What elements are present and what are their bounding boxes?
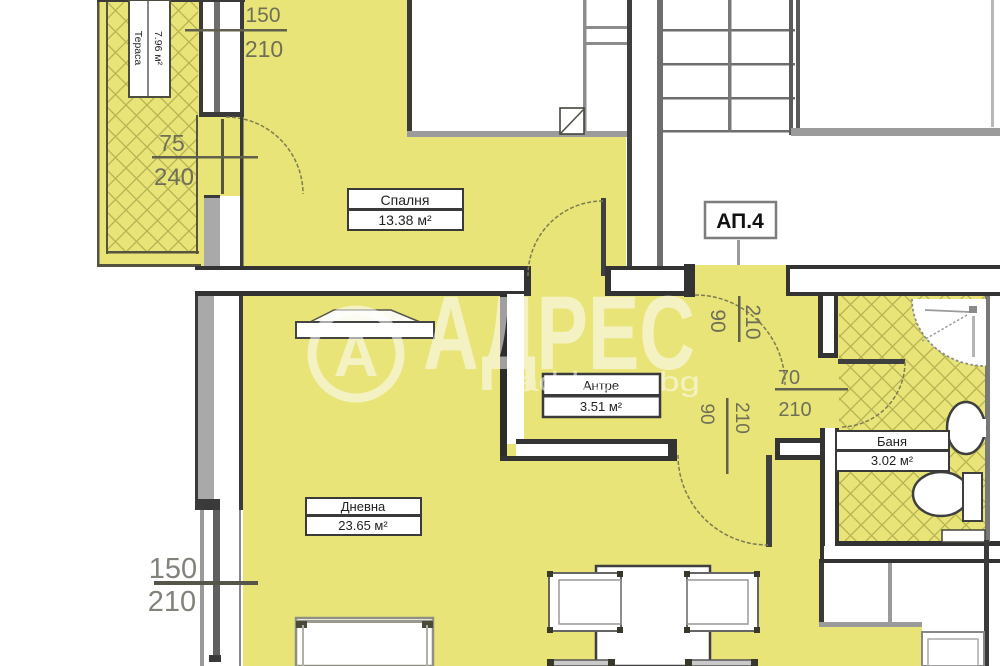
svg-text:210: 210 <box>731 402 752 434</box>
svg-text:Спалня: Спалня <box>381 192 430 208</box>
svg-text:90: 90 <box>706 309 729 332</box>
svg-text:150: 150 <box>149 553 197 585</box>
svg-text:210: 210 <box>778 399 811 421</box>
svg-text:150: 150 <box>245 4 280 27</box>
svg-text:address.bg: address.bg <box>518 366 700 397</box>
svg-text:23.65 м²: 23.65 м² <box>338 518 388 533</box>
svg-text:70: 70 <box>778 367 800 389</box>
svg-text:Баня: Баня <box>877 434 907 449</box>
svg-text:210: 210 <box>245 36 283 62</box>
svg-text:90: 90 <box>696 403 717 424</box>
svg-text:3.02 м²: 3.02 м² <box>871 453 914 468</box>
svg-text:А: А <box>334 321 379 390</box>
svg-text:75: 75 <box>159 130 185 156</box>
svg-text:210: 210 <box>741 304 764 339</box>
svg-text:Дневна: Дневна <box>341 499 386 514</box>
svg-text:7.96 м²: 7.96 м² <box>152 31 164 66</box>
svg-text:240: 240 <box>154 164 194 191</box>
svg-text:210: 210 <box>148 586 196 618</box>
svg-text:АП.4: АП.4 <box>716 210 764 233</box>
svg-text:3.51 м²: 3.51 м² <box>580 399 623 414</box>
svg-text:Тераса: Тераса <box>132 31 144 66</box>
svg-text:13.38 м²: 13.38 м² <box>378 212 432 228</box>
